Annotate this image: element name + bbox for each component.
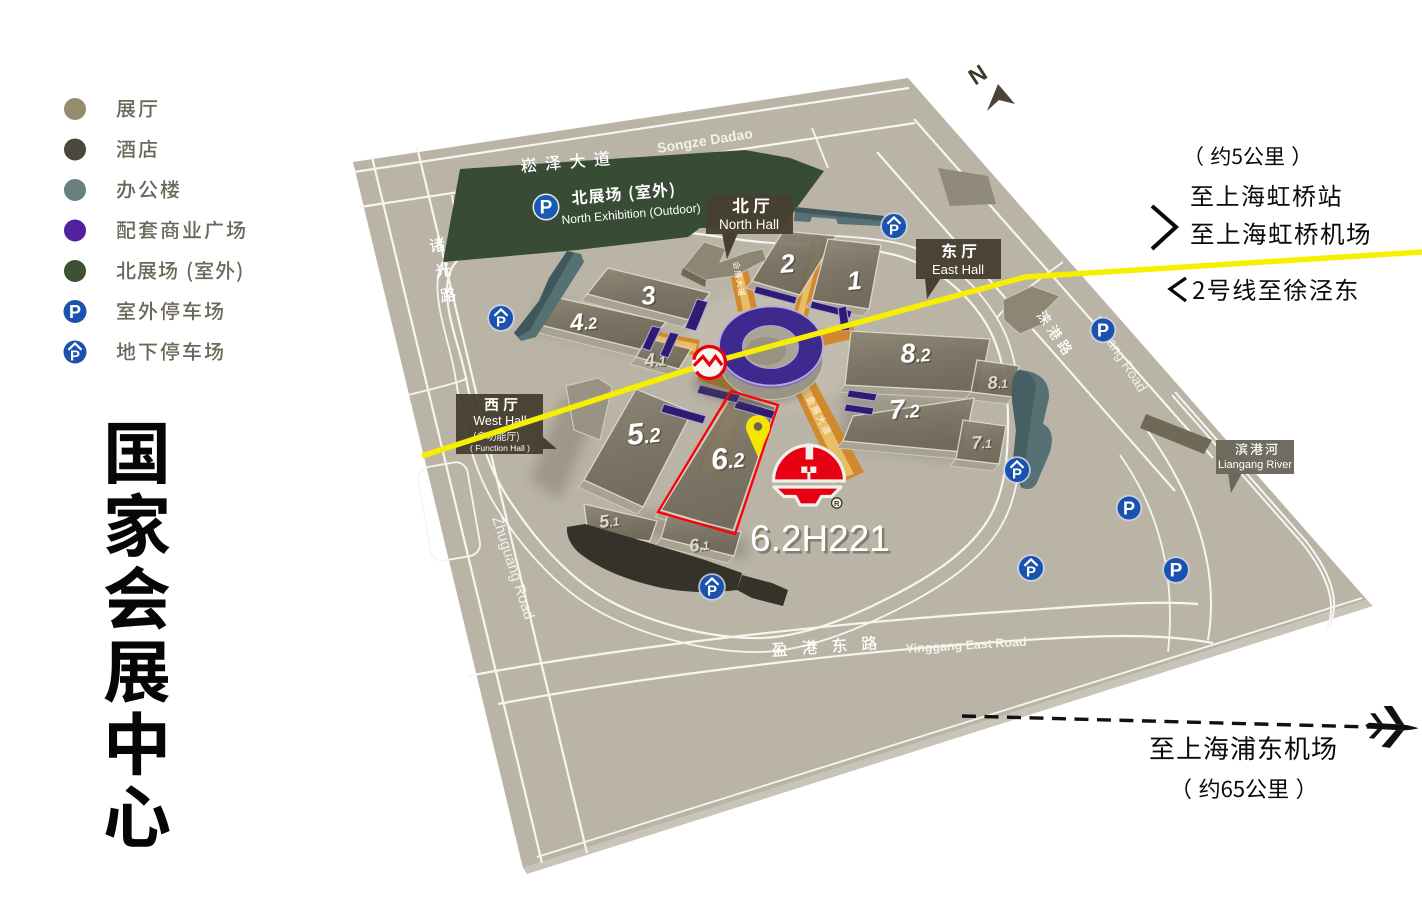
svg-text:P: P (540, 198, 553, 219)
svg-text:( Function Hall ): ( Function Hall ) (470, 443, 530, 453)
svg-text:6.2H221: 6.2H221 (750, 518, 890, 559)
svg-text:P: P (1123, 498, 1135, 518)
svg-text:Liangang River: Liangang River (1218, 459, 1292, 471)
svg-text:N: N (964, 59, 992, 90)
svg-text:East Hall: East Hall (932, 262, 984, 277)
svg-text:P: P (1026, 564, 1036, 581)
svg-text:P: P (496, 314, 506, 331)
svg-text:P: P (707, 583, 717, 600)
svg-text:2: 2 (778, 248, 797, 279)
svg-text:P: P (70, 348, 80, 365)
svg-text:R: R (834, 499, 840, 508)
svg-text:North Hall: North Hall (719, 217, 779, 232)
svg-text:P: P (1170, 561, 1183, 582)
svg-text:P: P (1012, 466, 1022, 483)
svg-text:P: P (1097, 320, 1109, 340)
svg-text:P: P (69, 302, 81, 322)
svg-text:1: 1 (846, 265, 863, 296)
svg-text:P: P (889, 222, 899, 239)
